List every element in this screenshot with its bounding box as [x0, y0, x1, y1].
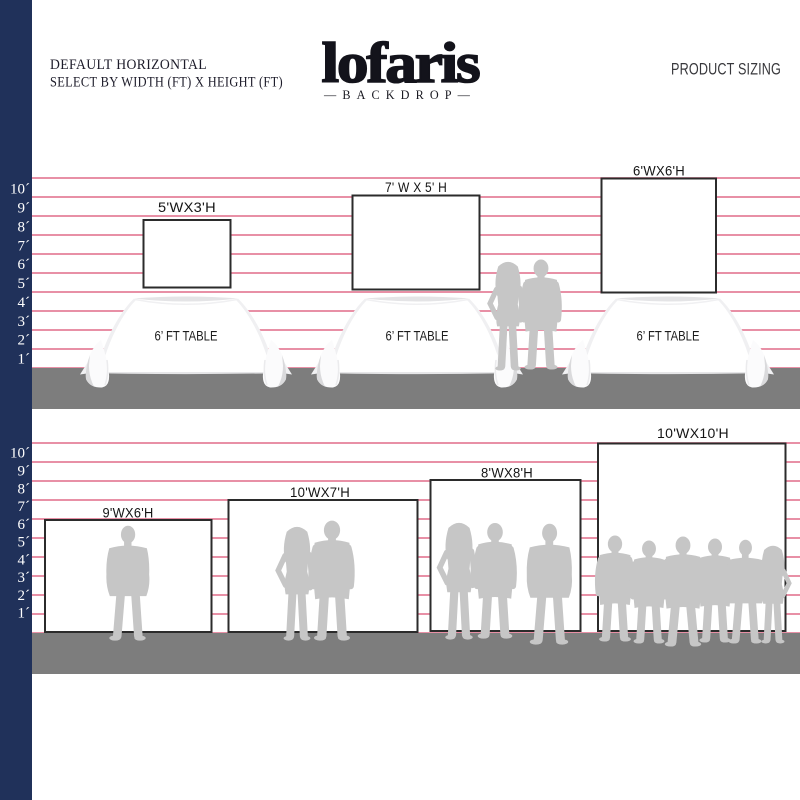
svg-text:1´: 1´ — [18, 352, 31, 368]
svg-text:SELECT BY WIDTH (FT) X HEIGHT: SELECT BY WIDTH (FT) X HEIGHT (FT) — [50, 74, 283, 91]
svg-text:2´: 2´ — [18, 333, 31, 349]
svg-text:lofaris: lofaris — [322, 32, 480, 95]
svg-text:6´: 6´ — [18, 517, 31, 533]
svg-text:10´: 10´ — [10, 446, 30, 462]
svg-text:2´: 2´ — [18, 588, 31, 604]
svg-text:6'WX6'H: 6'WX6'H — [633, 163, 685, 179]
svg-text:7´: 7´ — [18, 238, 31, 254]
svg-text:3´: 3´ — [18, 314, 31, 330]
svg-text:9´: 9´ — [18, 201, 31, 217]
svg-text:3´: 3´ — [18, 570, 31, 586]
svg-text:5´: 5´ — [18, 276, 31, 292]
svg-text:1´: 1´ — [18, 606, 31, 622]
svg-text:6´: 6´ — [18, 257, 31, 273]
svg-text:DEFAULT HORIZONTAL: DEFAULT HORIZONTAL — [50, 56, 207, 73]
svg-text:10'WX10'H: 10'WX10'H — [657, 425, 729, 441]
svg-text:PRODUCT SIZING: PRODUCT SIZING — [671, 61, 781, 79]
svg-text:8´: 8´ — [18, 220, 31, 236]
svg-text:5'WX3'H: 5'WX3'H — [158, 199, 216, 215]
svg-text:5´: 5´ — [18, 535, 31, 551]
svg-text:9'WX6'H: 9'WX6'H — [103, 505, 154, 521]
svg-text:4´: 4´ — [18, 552, 31, 568]
svg-text:10'WX7'H: 10'WX7'H — [290, 484, 350, 500]
svg-text:—BACKDROP—: —BACKDROP— — [323, 87, 476, 102]
svg-text:9´: 9´ — [18, 464, 31, 480]
svg-text:10´: 10´ — [10, 182, 30, 198]
svg-text:8'WX8'H: 8'WX8'H — [481, 465, 533, 481]
svg-text:7' W X 5' H: 7' W X 5' H — [385, 179, 447, 195]
svg-text:8´: 8´ — [18, 481, 31, 497]
svg-text:7´: 7´ — [18, 499, 31, 515]
svg-text:4´: 4´ — [18, 295, 31, 311]
